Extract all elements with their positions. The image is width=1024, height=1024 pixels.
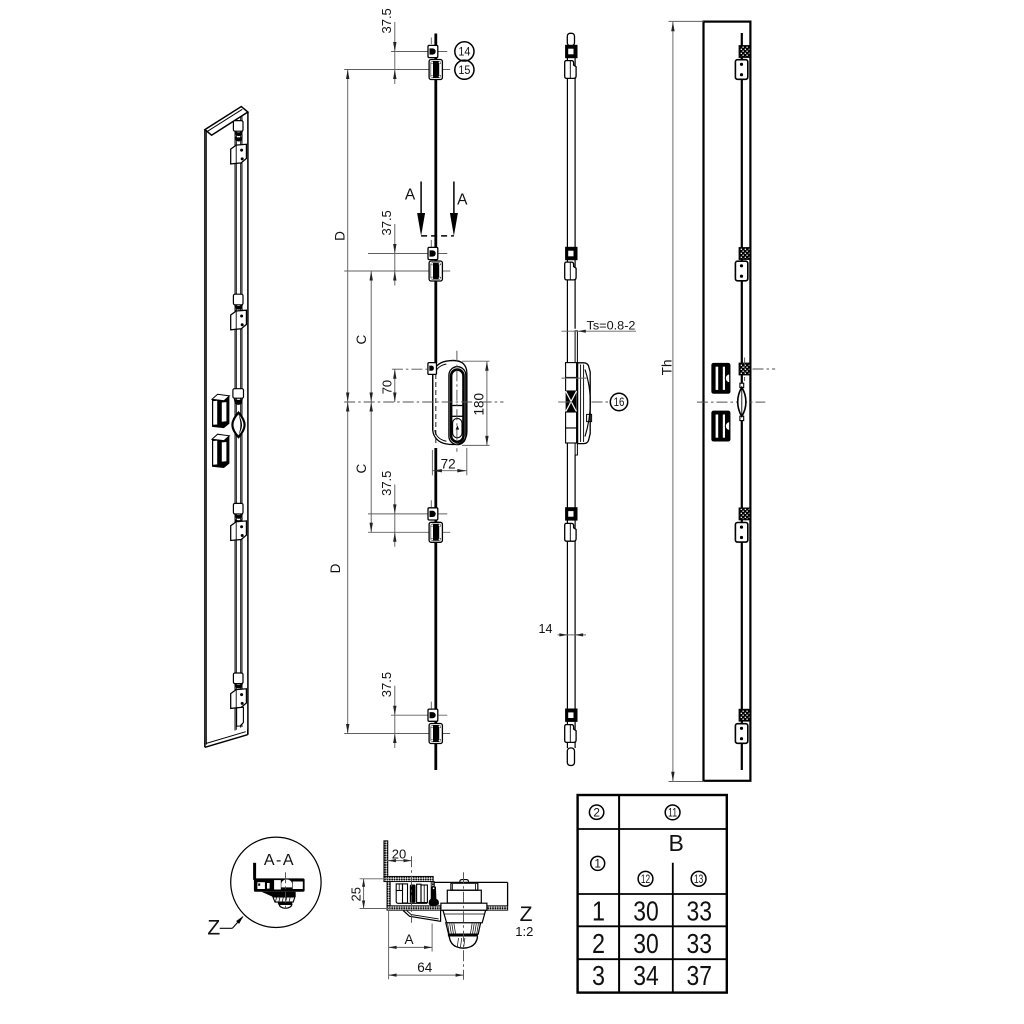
svg-text:34: 34 — [633, 960, 659, 991]
svg-text:11: 11 — [668, 806, 677, 820]
svg-text:64: 64 — [417, 960, 433, 975]
svg-text:37.5: 37.5 — [379, 672, 394, 697]
svg-text:13: 13 — [694, 872, 704, 886]
svg-text:A-A: A-A — [264, 852, 295, 869]
svg-text:Th: Th — [659, 359, 674, 375]
svg-text:33: 33 — [687, 928, 713, 959]
svg-text:37.5: 37.5 — [379, 210, 394, 235]
svg-text:D: D — [333, 231, 348, 241]
svg-text:70: 70 — [380, 380, 395, 394]
svg-text:2: 2 — [593, 805, 600, 819]
svg-text:Z: Z — [207, 916, 220, 939]
svg-text:1: 1 — [594, 857, 601, 871]
svg-text:C: C — [354, 463, 369, 473]
svg-text:Ts=0.8-2: Ts=0.8-2 — [587, 318, 636, 332]
svg-text:14: 14 — [458, 45, 470, 59]
svg-text:2: 2 — [592, 928, 605, 959]
svg-text:C: C — [354, 334, 369, 344]
svg-text:20: 20 — [392, 847, 406, 862]
svg-text:37.5: 37.5 — [379, 471, 394, 496]
svg-text:37: 37 — [687, 960, 713, 991]
svg-text:37.5: 37.5 — [379, 8, 394, 33]
svg-text:15: 15 — [458, 63, 470, 77]
svg-text:30: 30 — [633, 896, 659, 927]
svg-text:A: A — [404, 932, 413, 947]
svg-text:72: 72 — [441, 456, 456, 471]
svg-text:A: A — [405, 187, 416, 204]
svg-text:A: A — [457, 192, 468, 209]
svg-text:12: 12 — [641, 872, 650, 886]
svg-text:16: 16 — [614, 396, 625, 409]
svg-text:D: D — [328, 563, 343, 573]
svg-text:Z: Z — [520, 903, 533, 926]
svg-text:180: 180 — [472, 393, 487, 416]
svg-text:30: 30 — [633, 928, 659, 959]
svg-text:14: 14 — [539, 622, 553, 636]
svg-text:25: 25 — [348, 887, 363, 901]
svg-text:33: 33 — [687, 896, 713, 927]
svg-text:1: 1 — [592, 896, 605, 927]
svg-text:B: B — [669, 830, 684, 856]
svg-text:1:2: 1:2 — [515, 924, 533, 939]
svg-text:3: 3 — [592, 960, 605, 991]
